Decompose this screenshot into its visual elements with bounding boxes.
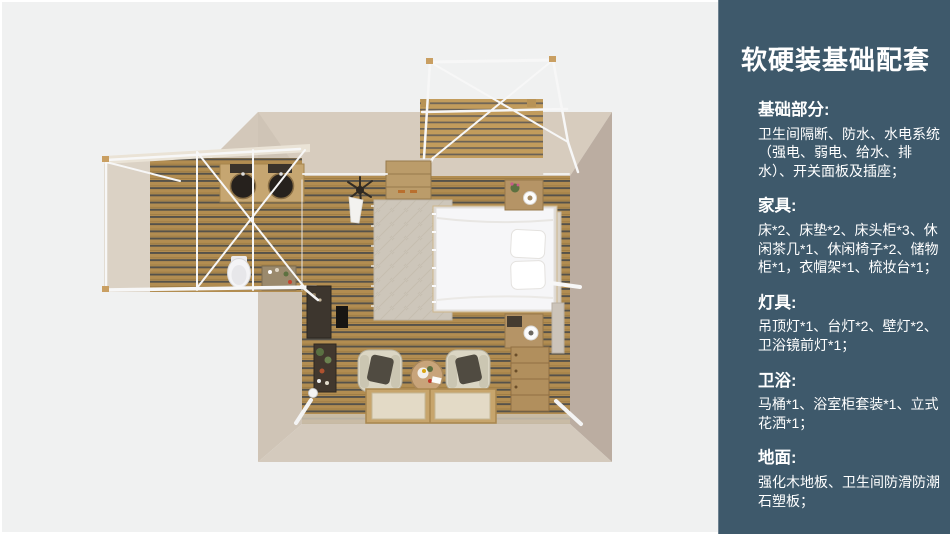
wall-mirror [552, 303, 564, 353]
balcony-joint-block-right [549, 56, 556, 62]
balcony-corner-block-right [527, 99, 536, 107]
section-heading: 卫浴: [758, 371, 944, 392]
floor-mats [366, 389, 496, 423]
section-furniture: 家具: 床*2、床垫*2、床头柜*3、休闲茶几*1、休闲椅子*2、储物柜*1，衣… [758, 196, 944, 276]
section-heading: 灯具: [758, 293, 944, 314]
armchair-left [358, 350, 402, 392]
info-panel: 软硬装基础配套 基础部分: 卫生间隔断、防水、水电系统（强电、弱电、给水、排水）… [718, 0, 950, 534]
sink-right [269, 174, 294, 199]
faucet-right [279, 172, 283, 176]
floorplan-area [0, 0, 718, 534]
sink-backsplash-left [230, 164, 254, 173]
nightstand-top [505, 180, 543, 210]
bed [432, 206, 557, 312]
chest-of-drawers [511, 347, 549, 411]
section-body: 卫生间隔断、防水、水电系统（强电、弱电、给水、排水）、开关面板及插座； [758, 125, 944, 181]
sink-left [231, 174, 256, 199]
panel-sections: 基础部分: 卫生间隔断、防水、水电系统（强电、弱电、给水、排水）、开关面板及插座… [758, 100, 944, 510]
bathroom-joint-block-top [102, 156, 109, 162]
balcony-joint-block-left [426, 58, 433, 64]
nightstand-bottom [505, 314, 543, 348]
section-flooring: 地面: 强化木地板、卫生间防滑防潮石塑板； [758, 448, 944, 510]
plant-shelf [314, 344, 336, 392]
section-bathroom: 卫浴: 马桶*1、浴室柜套装*1、立式花洒*1； [758, 371, 944, 433]
panel-title: 软硬装基础配套 [741, 46, 944, 76]
wall-bottom [258, 424, 612, 462]
floor-lamp [309, 389, 318, 398]
floorplan-render [0, 0, 718, 534]
section-body: 床*2、床垫*2、床头柜*3、休闲茶几*1、休闲椅子*2、储物柜*1，衣帽架*1… [758, 221, 944, 277]
bathroom-joint-block-bottom [102, 286, 109, 292]
balcony-deck [420, 99, 543, 158]
section-body: 吊顶灯*1、台灯*2、壁灯*2、卫浴镜前灯*1； [758, 317, 944, 354]
section-body: 马桶*1、浴室柜套装*1、立式花洒*1； [758, 395, 944, 432]
coffee-table [411, 360, 443, 392]
armchair-right [446, 350, 490, 392]
section-basics: 基础部分: 卫生间隔断、防水、水电系统（强电、弱电、给水、排水）、开关面板及插座… [758, 100, 944, 180]
section-body: 强化木地板、卫生间防滑防潮石塑板； [758, 473, 944, 510]
wardrobe [386, 161, 431, 199]
tv-panel [336, 306, 348, 328]
bathroom-wing [102, 144, 316, 292]
section-heading: 地面: [758, 448, 944, 469]
open-deck [104, 158, 152, 292]
section-heading: 家具: [758, 196, 944, 217]
slide: 软硬装基础配套 基础部分: 卫生间隔断、防水、水电系统（强电、弱电、给水、排水）… [0, 0, 950, 534]
section-lighting: 灯具: 吊顶灯*1、台灯*2、壁灯*2、卫浴镜前灯*1； [758, 293, 944, 355]
section-heading: 基础部分: [758, 100, 944, 121]
faucet-left [241, 172, 245, 176]
